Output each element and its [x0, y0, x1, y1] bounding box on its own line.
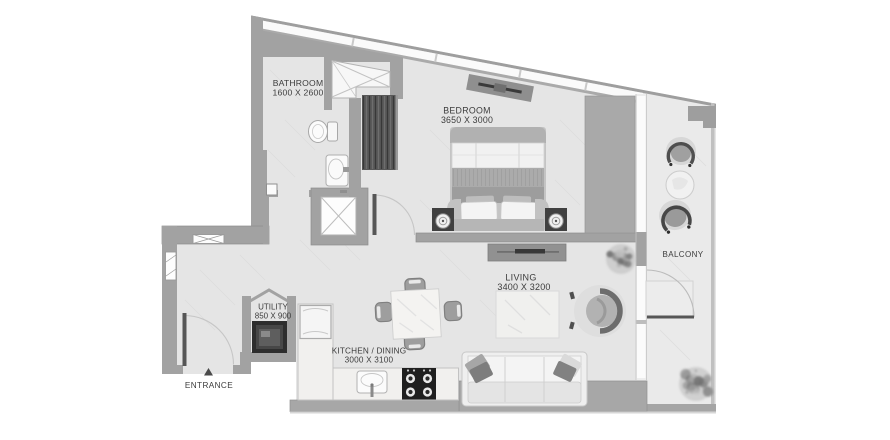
svg-text:UTILITY: UTILITY [258, 303, 288, 312]
svg-text:BEDROOM: BEDROOM [443, 106, 491, 116]
svg-text:ENTRANCE: ENTRANCE [185, 381, 233, 390]
svg-text:KITCHEN / DINING: KITCHEN / DINING [332, 347, 407, 356]
svg-text:BALCONY: BALCONY [662, 250, 703, 259]
svg-text:3650 X 3000: 3650 X 3000 [441, 115, 493, 125]
svg-text:LIVING: LIVING [505, 273, 536, 283]
svg-text:BATHROOM: BATHROOM [273, 78, 324, 88]
svg-text:3000 X 3100: 3000 X 3100 [345, 356, 394, 365]
svg-text:850 X 900: 850 X 900 [255, 312, 292, 321]
svg-text:1600 X 2600: 1600 X 2600 [273, 88, 324, 98]
